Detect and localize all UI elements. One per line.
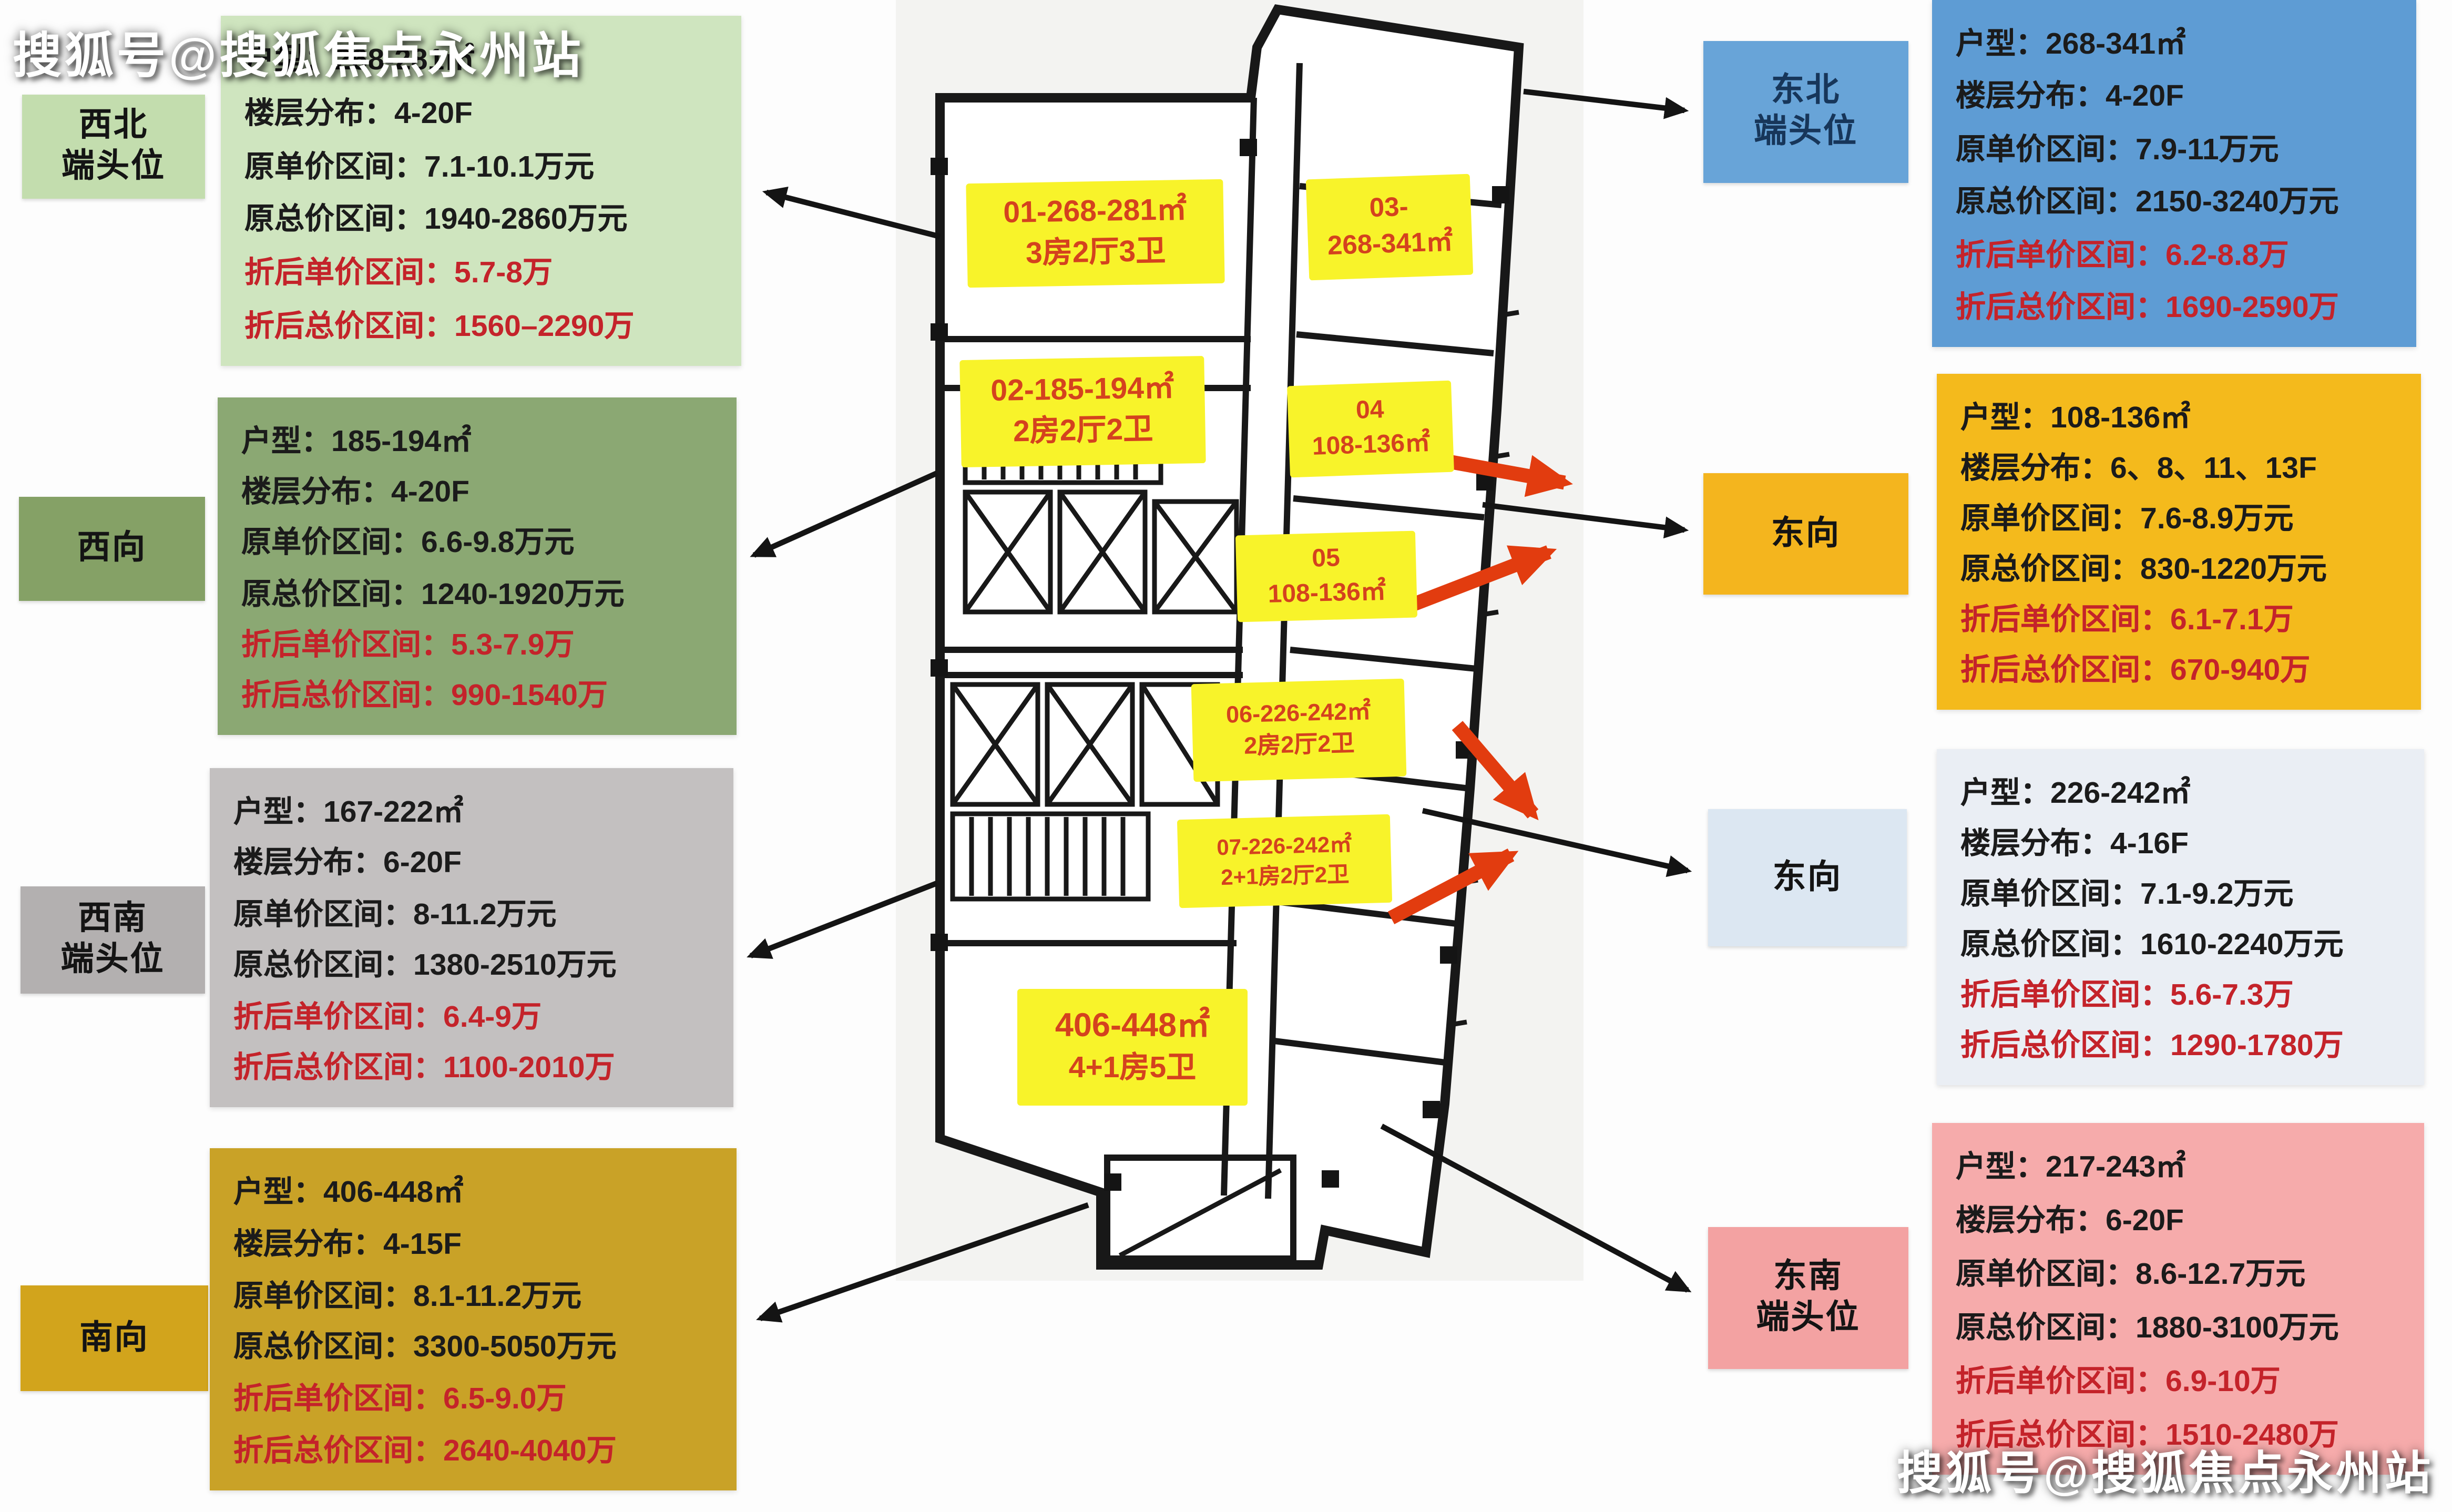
field-value: 1240-1920万元 [421, 570, 625, 613]
unit-04-area: 108-136㎡ [1312, 427, 1431, 465]
plan-unit-07: 07-226-242㎡ 2+1房2厅2卫 [1177, 814, 1392, 908]
direction-tag-southwest-end: 西南 端头位 [21, 886, 205, 994]
field-label: 折后单价区间： [1956, 231, 2165, 274]
field-value: 4-16F [2110, 828, 2189, 863]
unit-01-area: 01-268-281㎡ [1003, 191, 1187, 235]
field-value: 6.2-8.8万 [2165, 231, 2288, 274]
field-label: 折后总价区间： [233, 1044, 443, 1087]
direction-tag-south: 南向 [21, 1285, 208, 1391]
field-label: 原总价区间： [233, 942, 413, 985]
field-value: 1880-3100万元 [2136, 1304, 2339, 1347]
field-label: 折后单价区间： [1960, 972, 2170, 1014]
black-arrow-southwest [751, 883, 937, 956]
unit-05-number: 05 [1312, 542, 1341, 577]
field-label: 户型： [1956, 1143, 2046, 1186]
field-value: 5.3-7.9万 [451, 621, 574, 663]
field-value: 6-20F [383, 847, 462, 882]
black-arrow-northwest [767, 192, 940, 237]
discount-unit-price-row: 折后单价区间：5.3-7.9万 [241, 621, 713, 663]
screenshot-viewport: 01-268-281㎡ 3房2厅3卫 02-185-194㎡ 2房2厅2卫 03… [0, 0, 2452, 1512]
plan-unit-04: 04 108-136㎡ [1287, 381, 1454, 478]
plan-unit-penthouse: 406-448㎡ 4+1房5卫 [1017, 989, 1248, 1106]
floors-row: 楼层分布：6、8、11、13F [1960, 445, 2397, 487]
field-label: 楼层分布： [1960, 445, 2110, 487]
discount-total-price-row: 折后总价区间：1290-1780万 [1960, 1022, 2400, 1065]
field-label: 楼层分布： [1956, 1197, 2106, 1240]
floors-row: 楼层分布：6-20F [1956, 1197, 2400, 1240]
field-value: 8-11.2万元 [413, 891, 556, 933]
floors-row: 楼层分布：4-20F [244, 89, 718, 132]
field-label: 原单价区间： [1960, 871, 2140, 913]
total-price-row: 原总价区间：3300-5050万元 [233, 1324, 713, 1366]
area-row: 户型：226-242㎡ [1960, 770, 2400, 812]
unit-03-number: 03- [1369, 190, 1409, 228]
discount-unit-price-row: 折后单价区间：6.1-7.1万 [1960, 596, 2397, 639]
unit-price-row: 原单价区间：8-11.2万元 [233, 891, 710, 933]
field-label: 折后总价区间： [1956, 284, 2165, 326]
area-row: 户型：406-448㎡ [233, 1169, 713, 1211]
field-value: 1290-1780万 [2170, 1022, 2344, 1065]
field-value: 3300-5050万元 [413, 1324, 617, 1366]
field-label: 原单价区间： [233, 1272, 413, 1315]
discount-unit-price-row: 折后单价区间：5.7-8万 [244, 250, 718, 292]
tag-text: 东向 [1773, 857, 1842, 898]
info-card-south: 户型：406-448㎡ 楼层分布：4-15F 原单价区间：8.1-11.2万元 … [210, 1148, 737, 1490]
field-label: 折后总价区间： [1960, 1022, 2170, 1065]
field-label: 原单价区间： [1956, 126, 2136, 168]
field-label: 折后单价区间： [1960, 596, 2170, 639]
field-value: 1560–2290万 [454, 303, 634, 345]
info-card-east-upper: 户型：108-136㎡ 楼层分布：6、8、11、13F 原单价区间：7.6-8.… [1937, 374, 2421, 710]
field-value: 1690-2590万 [2165, 284, 2339, 326]
info-card-east-lower: 户型：226-242㎡ 楼层分布：4-16F 原单价区间：7.1-9.2万元 原… [1937, 749, 2424, 1085]
field-value: 4-20F [391, 477, 469, 512]
field-value: 167-222㎡ [323, 789, 463, 831]
area-row: 户型：268-341㎡ [1956, 21, 2393, 63]
field-value: 670-940万 [2170, 647, 2310, 689]
field-value: 406-448㎡ [323, 1169, 463, 1211]
unit-03-area: 268-341㎡ [1327, 225, 1453, 265]
unit-07-layout: 2+1房2厅2卫 [1221, 860, 1350, 893]
unit-price-row: 原单价区间：7.9-11万元 [1956, 126, 2393, 168]
black-arrow-northeast [1524, 91, 1684, 110]
unit-01-layout: 3房2厅3卫 [1025, 232, 1166, 275]
field-label: 折后单价区间： [233, 993, 443, 1036]
field-value: 830-1220万元 [2140, 546, 2327, 588]
field-label: 楼层分布： [241, 469, 391, 512]
field-label: 楼层分布： [1960, 820, 2110, 863]
unit-06-area: 06-226-242㎡ [1225, 697, 1371, 732]
field-value: 1380-2510万元 [413, 942, 617, 985]
tag-text: 端头位 [1756, 1298, 1861, 1339]
unit-price-row: 原单价区间：7.6-8.9万元 [1960, 495, 2397, 538]
field-value: 1940-2860万元 [424, 196, 628, 239]
discount-unit-price-row: 折后单价区间：6.2-8.8万 [1956, 231, 2393, 274]
field-label: 楼层分布： [233, 840, 383, 882]
field-label: 楼层分布： [233, 1220, 383, 1263]
field-value: 108-136㎡ [2050, 394, 2190, 437]
direction-tag-east-upper: 东向 [1703, 473, 1908, 595]
plan-unit-05: 05 108-136㎡ [1235, 531, 1417, 622]
unit-05-area: 108-136㎡ [1268, 575, 1386, 612]
tag-text: 南向 [80, 1318, 149, 1358]
field-label: 原总价区间： [1960, 921, 2140, 964]
plan-unit-03: 03- 268-341㎡ [1306, 174, 1474, 281]
total-price-row: 原总价区间：1880-3100万元 [1956, 1304, 2400, 1347]
field-label: 折后总价区间： [233, 1427, 443, 1470]
unit-02-area: 02-185-194㎡ [990, 370, 1174, 413]
watermark-bottom-right: 搜狐号@搜狐焦点永州站 [1897, 1437, 2434, 1503]
discount-total-price-row: 折后总价区间：670-940万 [1960, 647, 2397, 689]
watermark-top-left: 搜狐号@搜狐焦点永州站 [13, 16, 584, 87]
field-value: 2640-4040万 [443, 1427, 617, 1470]
field-label: 楼层分布： [244, 89, 394, 132]
tag-text: 东北 [1771, 71, 1841, 112]
field-label: 原总价区间： [244, 196, 424, 239]
field-value: 4-20F [2106, 81, 2184, 116]
field-value: 7.1-9.2万元 [2140, 871, 2293, 913]
field-value: 990-1540万 [451, 672, 608, 714]
field-value: 4-15F [383, 1228, 462, 1263]
field-value: 6-20F [2106, 1205, 2184, 1240]
field-label: 原总价区间： [241, 570, 421, 613]
field-label: 户型： [1956, 21, 2046, 63]
field-value: 6.4-9万 [443, 993, 542, 1036]
discount-total-price-row: 折后总价区间：2640-4040万 [233, 1427, 713, 1470]
floors-row: 楼层分布：4-15F [233, 1220, 713, 1263]
field-label: 户型： [233, 789, 323, 831]
info-card-southwest-end: 户型：167-222㎡ 楼层分布：6-20F 原单价区间：8-11.2万元 原总… [210, 768, 733, 1107]
field-value: 217-243㎡ [2046, 1143, 2185, 1186]
discount-unit-price-row: 折后单价区间：6.5-9.0万 [233, 1376, 713, 1418]
area-row: 户型：108-136㎡ [1960, 394, 2397, 437]
plan-unit-02: 02-185-194㎡ 2房2厅2卫 [959, 356, 1205, 467]
plan-unit-01: 01-268-281㎡ 3房2厅3卫 [966, 179, 1224, 288]
field-label: 户型： [1960, 394, 2050, 437]
unit-06-layout: 2房2厅2卫 [1243, 729, 1355, 763]
tag-text: 西南 [78, 900, 148, 940]
field-value: 7.1-10.1万元 [424, 143, 594, 186]
unit-penthouse-layout: 4+1房5卫 [1069, 1049, 1196, 1090]
field-value: 5.6-7.3万 [2170, 972, 2293, 1014]
direction-tag-northwest-end: 西北 端头位 [22, 95, 205, 199]
tag-text: 西向 [77, 529, 147, 569]
field-label: 折后单价区间： [1956, 1358, 2165, 1401]
total-price-row: 原总价区间：1380-2510万元 [233, 942, 710, 985]
unit-02-layout: 2房2厅2卫 [1013, 411, 1153, 454]
field-label: 原总价区间： [1960, 546, 2140, 588]
info-card-southeast-end: 户型：217-243㎡ 楼层分布：6-20F 原单价区间：8.6-12.7万元 … [1932, 1123, 2424, 1475]
discount-unit-price-row: 折后单价区间：5.6-7.3万 [1960, 972, 2400, 1014]
field-label: 折后总价区间： [244, 303, 454, 345]
field-label: 户型： [233, 1169, 323, 1211]
black-arrow-south [760, 1205, 1088, 1319]
field-label: 原单价区间： [1960, 495, 2140, 538]
area-row: 户型：217-243㎡ [1956, 1143, 2400, 1186]
direction-tag-northeast-end: 东北 端头位 [1703, 41, 1908, 183]
field-label: 折后单价区间： [241, 621, 451, 663]
field-value: 6.5-9.0万 [443, 1376, 566, 1418]
total-price-row: 原总价区间：2150-3240万元 [1956, 179, 2393, 221]
tag-text: 东向 [1771, 514, 1841, 554]
field-value: 6、8、11、13F [2110, 445, 2317, 487]
tag-text: 东南 [1774, 1258, 1843, 1298]
field-label: 原单价区间： [1956, 1251, 2136, 1293]
field-value: 226-242㎡ [2050, 770, 2190, 812]
area-row: 户型：167-222㎡ [233, 789, 710, 831]
unit-price-row: 原单价区间：7.1-10.1万元 [244, 143, 718, 186]
field-value: 6.6-9.8万元 [421, 519, 574, 562]
field-label: 折后单价区间： [233, 1376, 443, 1418]
floors-row: 楼层分布：6-20F [233, 840, 710, 882]
total-price-row: 原总价区间：1610-2240万元 [1960, 921, 2400, 964]
field-value: 5.7-8万 [454, 250, 553, 292]
field-label: 折后总价区间： [241, 672, 451, 714]
field-value: 7.6-8.9万元 [2140, 495, 2293, 538]
field-label: 楼层分布： [1956, 73, 2106, 116]
black-arrow-east-upper [1483, 505, 1684, 530]
floors-row: 楼层分布：4-20F [1956, 73, 2393, 116]
unit-04-number: 04 [1355, 394, 1385, 430]
direction-tag-southeast-end: 东南 端头位 [1708, 1227, 1908, 1369]
field-value: 8.1-11.2万元 [413, 1272, 581, 1315]
tag-text: 端头位 [62, 147, 166, 187]
floors-row: 楼层分布：4-16F [1960, 820, 2400, 863]
field-value: 1100-2010万 [443, 1044, 615, 1087]
field-label: 折后单价区间： [244, 250, 454, 292]
discount-total-price-row: 折后总价区间：1560–2290万 [244, 303, 718, 345]
area-row: 户型：185-194㎡ [241, 418, 713, 461]
field-label: 原总价区间： [1956, 1304, 2136, 1347]
floorplan-price-diagram: 01-268-281㎡ 3房2厅3卫 02-185-194㎡ 2房2厅2卫 03… [0, 0, 2452, 1512]
plan-unit-06: 06-226-242㎡ 2房2厅2卫 [1191, 679, 1407, 782]
unit-penthouse-area: 406-448㎡ [1055, 1005, 1210, 1049]
field-value: 268-341㎡ [2046, 21, 2185, 63]
unit-price-row: 原单价区间：8.6-12.7万元 [1956, 1251, 2400, 1293]
unit-price-row: 原单价区间：6.6-9.8万元 [241, 519, 713, 562]
discount-total-price-row: 折后总价区间：1100-2010万 [233, 1044, 710, 1087]
unit-price-row: 原单价区间：7.1-9.2万元 [1960, 871, 2400, 913]
tag-text: 端头位 [1754, 112, 1858, 152]
unit-07-area: 07-226-242㎡ [1217, 830, 1352, 863]
field-value: 4-20F [394, 97, 473, 132]
total-price-row: 原总价区间：1940-2860万元 [244, 196, 718, 239]
field-label: 原单价区间： [244, 143, 424, 186]
floors-row: 楼层分布：4-20F [241, 469, 713, 512]
discount-unit-price-row: 折后单价区间：6.4-9万 [233, 993, 710, 1036]
field-label: 户型： [1960, 770, 2050, 812]
field-value: 6.1-7.1万 [2170, 596, 2293, 639]
field-label: 原总价区间： [233, 1324, 413, 1366]
total-price-row: 原总价区间：830-1220万元 [1960, 546, 2397, 588]
tag-text: 西北 [79, 106, 148, 147]
direction-tag-west: 西向 [19, 497, 205, 601]
field-label: 原单价区间： [233, 891, 413, 933]
field-label: 折后总价区间： [1960, 647, 2170, 689]
black-arrow-west [754, 473, 937, 555]
discount-total-price-row: 折后总价区间：990-1540万 [241, 672, 713, 714]
field-label: 原单价区间： [241, 519, 421, 562]
field-value: 7.9-11万元 [2136, 126, 2279, 168]
field-value: 6.9-10万 [2165, 1358, 2281, 1401]
total-price-row: 原总价区间：1240-1920万元 [241, 570, 713, 613]
info-card-northeast-end: 户型：268-341㎡ 楼层分布：4-20F 原单价区间：7.9-11万元 原总… [1932, 0, 2416, 347]
discount-total-price-row: 折后总价区间：1690-2590万 [1956, 284, 2393, 326]
tag-text: 端头位 [61, 940, 165, 980]
direction-tag-east-lower: 东向 [1708, 809, 1907, 946]
field-value: 185-194㎡ [331, 418, 471, 461]
field-label: 户型： [241, 418, 331, 461]
unit-price-row: 原单价区间：8.1-11.2万元 [233, 1272, 713, 1315]
discount-unit-price-row: 折后单价区间：6.9-10万 [1956, 1358, 2400, 1401]
info-card-west: 户型：185-194㎡ 楼层分布：4-20F 原单价区间：6.6-9.8万元 原… [218, 397, 737, 735]
field-label: 原总价区间： [1956, 179, 2136, 221]
field-value: 1610-2240万元 [2140, 921, 2344, 964]
field-value: 2150-3240万元 [2136, 179, 2339, 221]
field-value: 8.6-12.7万元 [2136, 1251, 2305, 1293]
